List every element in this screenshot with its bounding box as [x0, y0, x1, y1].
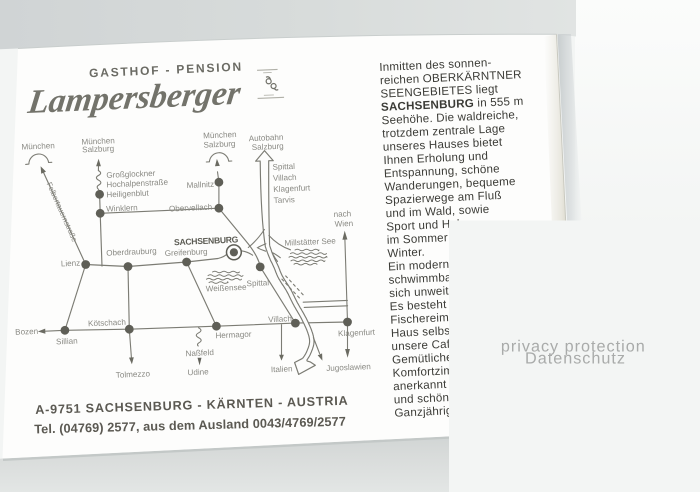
svg-text:Mallnitz: Mallnitz [186, 180, 214, 190]
svg-text:Winter.: Winter. [387, 246, 425, 261]
svg-text:Datenschutz: Datenschutz [525, 349, 626, 367]
svg-text:München: München [21, 141, 55, 151]
svg-text:Sillian: Sillian [56, 336, 78, 346]
svg-text:Winklern: Winklern [106, 203, 138, 213]
svg-text:Obervellach: Obervellach [169, 203, 213, 214]
svg-text:Tarvis: Tarvis [273, 195, 295, 205]
svg-text:Greifenburg: Greifenburg [165, 247, 208, 258]
svg-text:Kötschach: Kötschach [88, 318, 126, 329]
svg-text:Italien: Italien [271, 364, 293, 374]
svg-text:Salzburg: Salzburg [203, 139, 235, 149]
svg-text:Naßfeld: Naßfeld [185, 348, 214, 358]
svg-text:nach: nach [333, 209, 351, 219]
svg-text:Klagenfurt: Klagenfurt [338, 328, 376, 339]
svg-text:Salzburg: Salzburg [252, 142, 284, 152]
svg-text:Hermagor: Hermagor [215, 330, 252, 341]
svg-text:Weißensee: Weißensee [206, 283, 248, 294]
svg-text:Villach: Villach [273, 173, 297, 183]
svg-text:Heiligenblut: Heiligenblut [106, 189, 149, 200]
svg-text:Udine: Udine [187, 367, 209, 377]
svg-text:Lienz: Lienz [61, 259, 81, 269]
svg-text:Villach: Villach [268, 314, 292, 324]
svg-text:Salzburg: Salzburg [82, 144, 114, 154]
svg-text:im Sommer: im Sommer [387, 231, 449, 247]
svg-text:Tolmezzo: Tolmezzo [116, 369, 151, 380]
svg-text:Wien: Wien [334, 219, 353, 229]
svg-text:Bozen: Bozen [15, 327, 38, 337]
svg-text:Spittal: Spittal [246, 278, 269, 288]
svg-text:Klagenfurt: Klagenfurt [273, 183, 311, 194]
svg-text:Spittal: Spittal [272, 162, 295, 172]
